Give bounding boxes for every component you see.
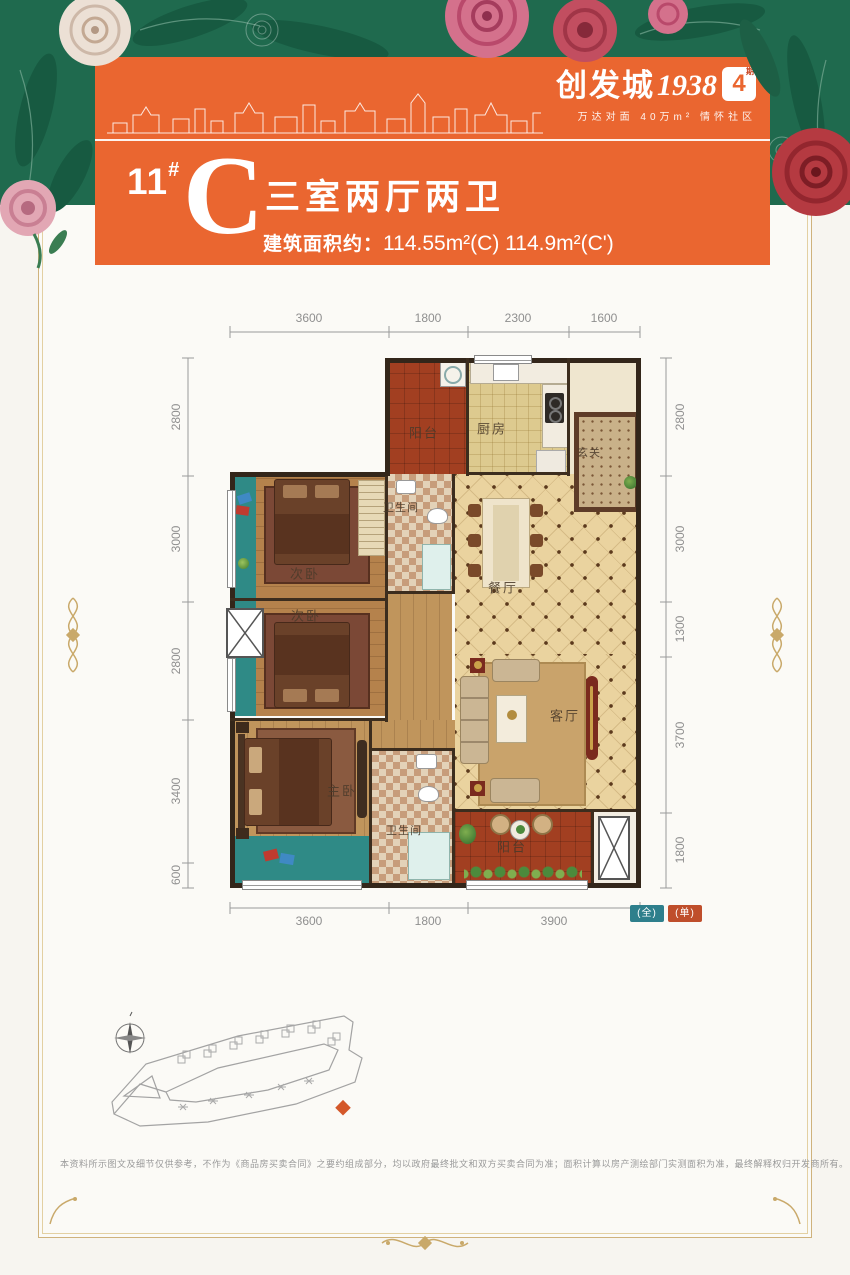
washing-machine [440,361,466,387]
room-label-balcony-top: 阳台 [409,423,439,442]
room-label-kitchen: 厨房 [477,419,507,438]
dim-label: 3000 [169,526,183,553]
dining-chair [468,534,481,547]
dim-label: 3900 [541,914,568,928]
dining-chair [530,534,543,547]
dim-label: 2800 [673,404,687,431]
foyer-rug [574,412,640,512]
master-window-seat [232,836,369,883]
bedroom-a-wardrobe [358,480,385,556]
sofa-loveseat-bottom [490,778,540,803]
skyline-art [107,65,543,137]
dim-label: 1600 [591,311,618,325]
dim-label: 3600 [296,311,323,325]
room-label-bedroom-b: 次卧 [291,606,321,625]
window [474,355,532,364]
logo-brand-text: 创发城 [556,70,655,101]
building-hash: # [168,159,180,181]
nightstand-1 [236,722,249,733]
ac-platform-symbol [598,816,630,880]
area-label: 建筑面积约： [263,234,383,255]
flyer-page: 创发城 1938 4 期 万达对面 40万m² 情怀社区 11# C 三室两厅两… [0,0,850,1275]
bath-b-sink [416,754,437,769]
dim-label: 600 [169,865,183,885]
side-table [470,658,485,673]
brand-banner: 创发城 1938 4 期 万达对面 40万m² 情怀社区 11# C 三室两厅两… [95,57,770,265]
dining-chair [468,564,481,577]
building-number: 11# [127,159,180,203]
tv-console [586,676,598,760]
room-label-bedroom-a: 次卧 [290,564,320,583]
balcony-plant-row [464,864,582,880]
dim-label: 3700 [673,722,687,749]
room-label-bath-b: 卫生间 [386,822,422,838]
sofa-main [460,676,489,764]
room-label-living: 客厅 [550,706,580,725]
unit-type-letter: C [183,145,264,248]
legend-chip-single: (单) [668,905,702,922]
master-bed [244,738,332,826]
bedroom-b-bed [274,622,350,708]
dim-label: 2800 [169,404,183,431]
shaft-symbol [226,608,264,658]
bath-a-shower [422,544,451,590]
dining-chair [530,564,543,577]
logo-phase-badge: 4 期 [722,67,756,101]
dim-label: 2800 [169,648,183,675]
hallway [388,594,452,720]
master-tv-bench [357,740,367,818]
window [242,880,362,890]
room-label-master: 主卧 [327,781,357,800]
dim-label: 3400 [169,778,183,805]
dining-table [482,498,530,588]
bath-b-toilet [418,786,439,802]
bay-deco-red [235,505,249,516]
fridge [536,450,566,473]
room-label-balcony-bottom: 阳台 [497,837,527,856]
dim-label: 1800 [415,914,442,928]
bath-a-sink [396,480,416,494]
brand-logo: 创发城 1938 4 期 万达对面 40万m² 情怀社区 [556,67,756,123]
logo-tagline: 万达对面 40万m² 情怀社区 [556,108,756,123]
dim-label: 1800 [673,837,687,864]
dim-label: 1800 [415,311,442,325]
window [227,490,236,588]
dining-chair [530,504,543,517]
dim-label: 3000 [673,526,687,553]
dim-label: 1300 [673,616,687,643]
logo-year-text: 1938 [657,71,717,101]
balcony-chair [490,814,511,835]
nightstand-2 [236,828,249,839]
bath-a-toilet [427,508,448,524]
logo-phase-number: 4 [732,70,745,97]
balcony-plant [459,824,476,844]
kitchen-side-counter [542,384,569,448]
bedroom-a-bed [274,479,350,565]
room-label-foyer: 玄关 [577,444,601,460]
side-table [470,781,485,796]
bath-b-shower [408,832,450,880]
sofa-loveseat-top [492,659,540,682]
logo-phase-unit: 期 [746,68,754,76]
coffee-table [496,695,527,743]
room-label-bath-a: 卫生间 [383,499,419,515]
master-entry [369,720,455,748]
dining-chair [468,504,481,517]
dim-label: 2300 [505,311,532,325]
unit-layout-title: 三室两厅两卫 [265,169,505,220]
area-value: 114.55m²(C) 114.9m²(C') [383,232,614,255]
window [227,658,236,712]
legend-chip-full: (全) [630,905,664,922]
bay-plant [238,558,249,569]
balcony-chair [532,814,553,835]
room-label-dining: 餐厅 [488,578,518,597]
dim-label: 3600 [296,914,323,928]
balcony-railing [466,880,588,890]
